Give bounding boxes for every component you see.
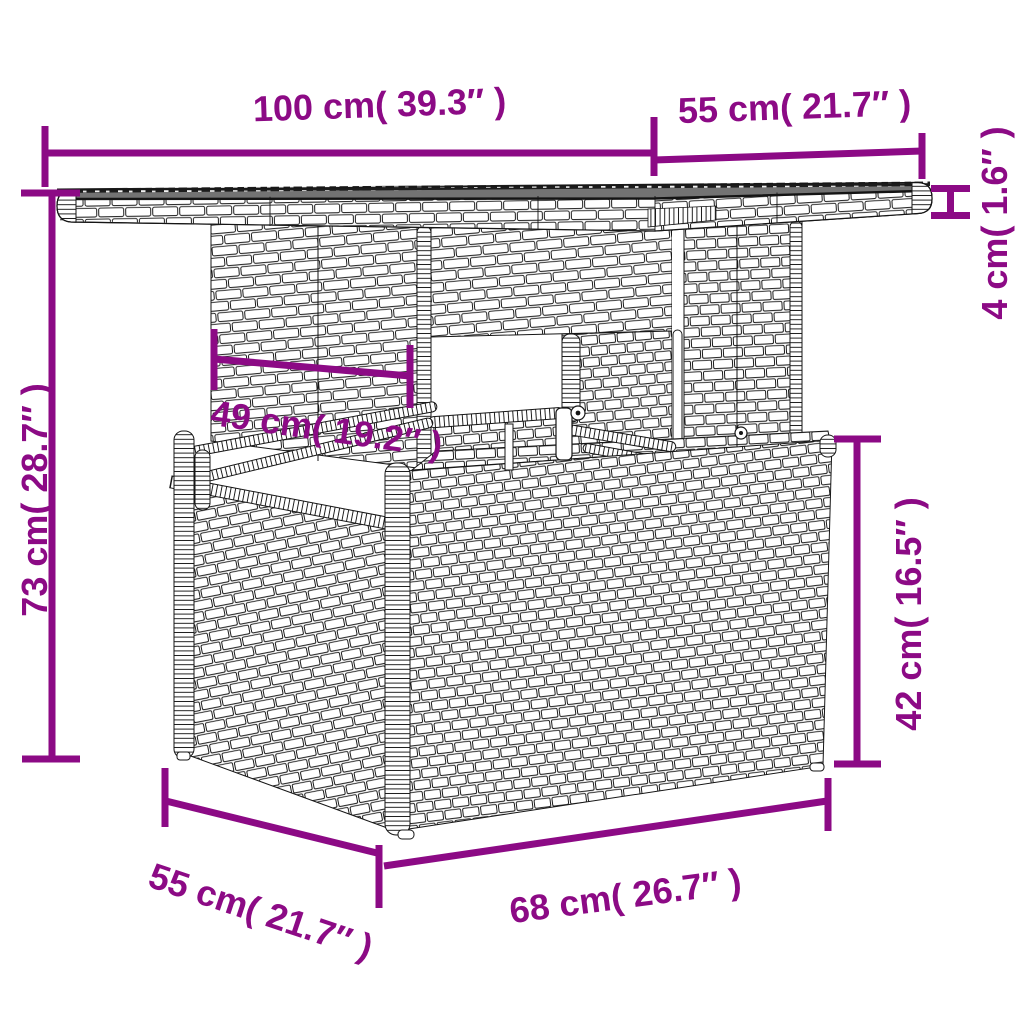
svg-text:4 cm( 1.6″ ): 4 cm( 1.6″ ) — [974, 126, 1015, 319]
svg-text:55 cm( 21.7″ ): 55 cm( 21.7″ ) — [677, 82, 912, 131]
svg-text:73 cm( 28.7″ ): 73 cm( 28.7″ ) — [14, 383, 55, 616]
svg-text:42 cm( 16.5″ ): 42 cm( 16.5″ ) — [888, 497, 929, 730]
